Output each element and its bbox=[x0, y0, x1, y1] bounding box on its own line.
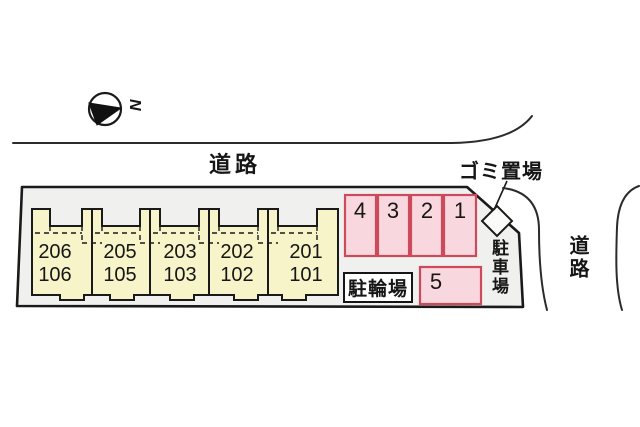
unit-lower-number: 103 bbox=[150, 264, 210, 287]
unit-label-206-106: 206 106 bbox=[25, 241, 85, 287]
stall-number-5: 5 bbox=[424, 269, 448, 295]
unit-upper-number: 206 bbox=[25, 241, 85, 264]
site-plan-drawing: N bbox=[0, 0, 640, 427]
road-line-top bbox=[13, 116, 532, 143]
garbage-leader-line bbox=[494, 181, 507, 210]
unit-upper-number: 203 bbox=[150, 241, 210, 264]
unit-upper-number: 202 bbox=[207, 241, 267, 264]
unit-lower-number: 101 bbox=[276, 264, 336, 287]
unit-lower-number: 105 bbox=[90, 264, 150, 287]
compass-letter: N bbox=[126, 99, 143, 111]
stall-number-4: 4 bbox=[348, 198, 372, 224]
unit-label-201-101: 201 101 bbox=[276, 241, 336, 287]
garbage-area-label: ゴミ置場 bbox=[459, 155, 543, 184]
stall-number-1: 1 bbox=[448, 198, 472, 224]
bicycle-parking-box: 駐輪場 bbox=[343, 272, 413, 303]
bicycle-parking-label: 駐輪場 bbox=[348, 274, 408, 301]
road-label-top: 道路 bbox=[209, 147, 261, 179]
unit-upper-number: 205 bbox=[90, 241, 150, 264]
unit-label-205-105: 205 105 bbox=[90, 241, 150, 287]
unit-label-202-102: 202 102 bbox=[207, 241, 267, 287]
stall-number-2: 2 bbox=[415, 198, 439, 224]
stall-number-3: 3 bbox=[381, 198, 405, 224]
site-plan: N 道路 ゴミ置場 駐車場 道路 206 106 205 105 203 103… bbox=[0, 0, 640, 427]
unit-lower-number: 106 bbox=[25, 264, 85, 287]
parking-lot-label: 駐車場 bbox=[486, 239, 511, 305]
compass-north-icon: N bbox=[89, 93, 143, 125]
road-line-right-outer bbox=[616, 186, 639, 310]
unit-upper-number: 201 bbox=[276, 241, 336, 264]
road-label-right: 道路 bbox=[563, 235, 592, 281]
unit-lower-number: 102 bbox=[207, 264, 267, 287]
unit-label-203-103: 203 103 bbox=[150, 241, 210, 287]
